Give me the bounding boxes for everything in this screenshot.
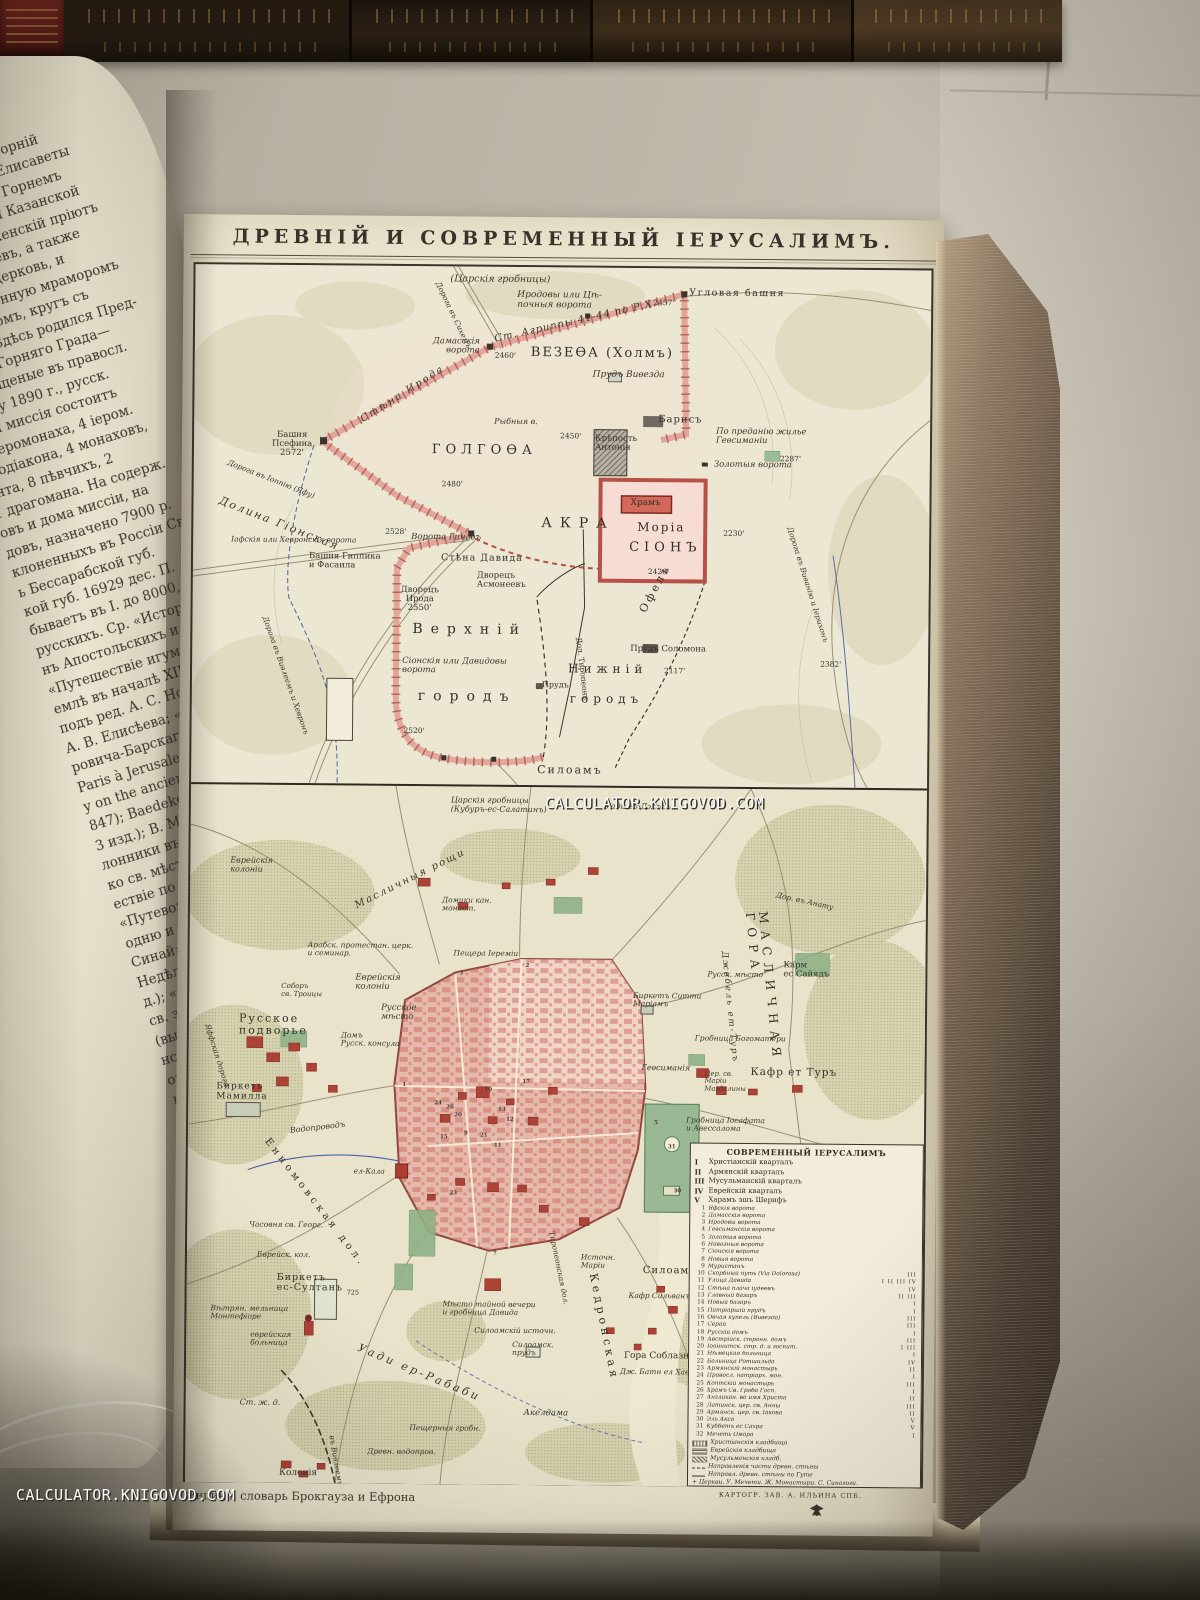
watermark-center: CALCULATOR.KNIGOVOD.COM [545, 794, 764, 812]
map-label: Прудъ Виѳезда [593, 371, 665, 381]
map-label: Моріа [637, 521, 685, 534]
legend-swatch-icon [692, 1456, 707, 1462]
map-label: Силоамъ [537, 764, 603, 776]
map-label: Храмъ [630, 499, 660, 509]
city-number: 23 [449, 1190, 457, 1196]
city-number: 30 [673, 1188, 681, 1194]
city-number: 11 [494, 1143, 502, 1149]
map-label: Стѣна Давида [441, 553, 523, 564]
city-number: 13 [498, 1107, 506, 1113]
legend-swatch-icon [692, 1467, 705, 1468]
map-label: городъ [418, 689, 517, 705]
book-spines [62, 0, 1062, 62]
legend-symbol-row: + Церкви. У. Мечети. Ж. Монастыри. С. Си… [692, 1478, 915, 1488]
map-label: 2520' [403, 727, 424, 735]
book-spine [352, 0, 590, 62]
legend-symbols: Христіанскія кладбищаЕврейскія кладбищаМ… [692, 1438, 915, 1488]
map-label: ГОЛГОѲА [432, 443, 537, 458]
legend-swatch-icon [692, 1475, 705, 1476]
city-number: 21 [480, 1133, 488, 1139]
map-label: Иродовы или Цѣ- почныя ворота [517, 291, 602, 311]
book-fore-edge [936, 234, 1060, 1530]
map-label: Іафскія или Хевронскія ворота [231, 535, 356, 544]
map-label: Башня Псефина 2572' [272, 431, 313, 459]
map-label: 2460' [495, 352, 516, 360]
city-number: 31 [668, 1144, 676, 1150]
map-label: Дорога въ Виѳанію и Іерихонъ [785, 526, 829, 643]
map-label: Барисъ [658, 415, 702, 426]
map-label: 2480' [442, 480, 463, 488]
map-label: СІОНЪ [629, 541, 702, 556]
map-label: Прудъ Соломона [630, 645, 706, 655]
city-number: 10 [484, 1087, 492, 1093]
map-label: Сіонскія или Давидовы ворота [402, 657, 507, 676]
plate-title: ДРЕВНІЙ И СОВРЕМЕННЫЙ ІЕРУСАЛИМЪ. [184, 225, 944, 254]
legend-items: 1Яфскія ворота2Дамасскія ворота3Иродовы … [692, 1205, 917, 1440]
left-page: Горняя» или «Горнійали Захарія и Елисаве… [0, 56, 204, 1468]
map-label: 2117' [664, 667, 685, 675]
city-number: 24 [434, 1100, 442, 1106]
map-label: Башня Гиппика и Фасаила [309, 552, 381, 571]
map-label: 2230' [723, 530, 744, 538]
photo-scene: Горняя» или «Горнійали Захарія и Елисаве… [0, 0, 1200, 1600]
map-label: Стѣна Ирода [359, 364, 447, 425]
city-number: 9 [464, 1130, 468, 1136]
legend-swatch-icon [692, 1448, 707, 1454]
city-number: 5 [654, 1120, 658, 1126]
map-label: (Царскія гробницы) [450, 274, 550, 285]
city-number: 15 [440, 1134, 448, 1140]
map-label: Прудъ [542, 681, 569, 690]
book-spine [62, 0, 349, 62]
city-number: 3 [459, 970, 463, 976]
plate-caption-cartographer: КАРТОГР. ЗАВ. А. ИЛЬИНА СПБ. [719, 1491, 862, 1500]
city-number: 2 [525, 963, 529, 969]
map-label: АКРА [541, 516, 615, 532]
city-number: 20 [454, 1112, 462, 1118]
city-number: 12 [506, 1117, 514, 1123]
legend-quarters: IХристіанскій кварталъIIАрмянскій кварта… [694, 1157, 917, 1206]
city-number: 1 [402, 1082, 406, 1088]
legend-swatch-icon [692, 1440, 707, 1446]
ancient-jerusalem-map: (Царскія гробницы)Иродовы или Цѣ- почныя… [191, 264, 931, 788]
watermark-bottom: CALCULATOR.KNIGOVOD.COM [16, 1486, 235, 1504]
plate-page: ДРЕВНІЙ И СОВРЕМЕННЫЙ ІЕРУСАЛИМЪ. [173, 214, 944, 1537]
map-label: 2382' [820, 661, 841, 669]
map-label: 2450' [560, 432, 581, 440]
map-label: Дворецъ Асмонеевъ [477, 572, 526, 591]
left-page-text-column: Горняя» или «Горнійали Захарія и Елисаве… [0, 78, 204, 1468]
map-label: Дорога въ Виѳлеемъ и Хевронъ [261, 615, 310, 735]
map-label: Ворота Гинаѳъ [411, 533, 481, 543]
city-number: 17 [522, 1079, 530, 1085]
map-label: Дорога въ Іоппію (Яфу) [226, 459, 315, 501]
ancient-map-labels: (Царскія гробницы)Иродовы или Цѣ- почныя… [191, 264, 931, 788]
red-book-spine [0, 0, 64, 57]
legend-panel: СОВРЕМЕННЫЙ ІЕРУСАЛИМЪ IХристіанскій ква… [687, 1142, 924, 1488]
map-label: Крѣпость Антонія [595, 435, 637, 454]
city-number: 7 [493, 1251, 497, 1257]
map-frame: (Царскія гробницы)Иродовы или Цѣ- почныя… [183, 262, 934, 1488]
map-label: ВЕЗЕѲА (Холмъ) [531, 346, 674, 361]
map-label: Верхній [412, 622, 527, 638]
modern-jerusalem-map: Царскія гробницы (Кубуръ-ес-Салатинъ)Уад… [185, 782, 927, 1488]
map-label: Дворецъ Ирода 2550' [401, 586, 439, 614]
map-label: 2528' [385, 528, 406, 536]
map-label: Угловая башня [689, 288, 785, 299]
book-spine [854, 0, 1062, 62]
map-label: Дамасскія ворота [433, 337, 480, 356]
map-label: Золотыя ворота [714, 461, 792, 471]
book-spine [593, 0, 851, 62]
city-number: 26 [446, 1104, 454, 1110]
map-label: По преданію жилье Геѳсиманіи [716, 428, 807, 447]
publisher-eagle-icon [809, 1504, 825, 1518]
map-label: Рыбныя в. [494, 418, 538, 427]
